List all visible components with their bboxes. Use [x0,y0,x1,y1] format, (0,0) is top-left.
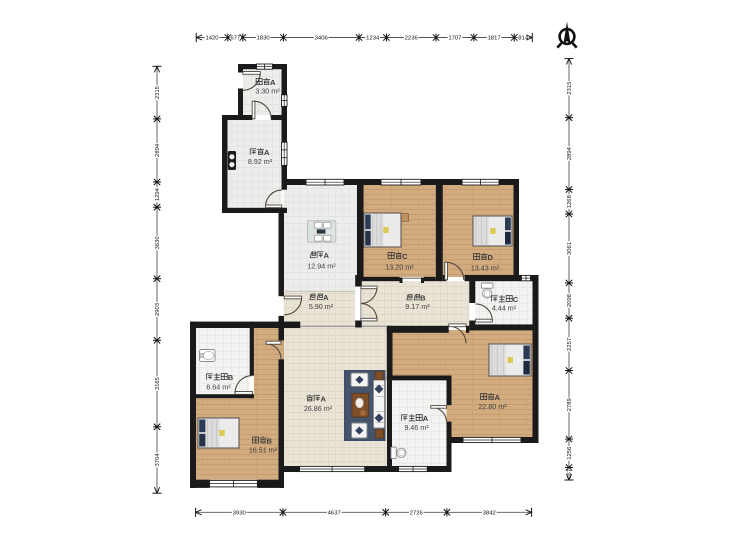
svg-text:4.44 m²: 4.44 m² [492,304,517,313]
svg-text:6.64 m²: 6.64 m² [206,383,231,392]
svg-text:3930: 3930 [233,510,247,516]
svg-text:2789: 2789 [567,398,573,411]
svg-text:C: C [402,252,408,261]
svg-text:B: B [228,373,234,382]
svg-text:A: A [495,393,501,402]
svg-text:2903: 2903 [155,302,161,316]
svg-text:3.30 m²: 3.30 m² [255,87,280,96]
svg-text:3704: 3704 [155,453,161,467]
svg-text:4637: 4637 [328,510,341,516]
svg-text:13.20 m²: 13.20 m² [385,263,414,272]
svg-text:26.86 m²: 26.86 m² [304,404,333,413]
svg-text:22.80 m²: 22.80 m² [478,402,507,411]
svg-text:12.94 m²: 12.94 m² [307,262,336,271]
svg-text:2726: 2726 [410,510,424,516]
svg-text:5.90 m²: 5.90 m² [309,302,334,311]
svg-text:3630: 3630 [155,236,161,250]
svg-text:9.46 m²: 9.46 m² [404,423,429,432]
svg-text:A: A [270,78,276,87]
svg-text:13.43 m²: 13.43 m² [471,264,500,273]
svg-text:1817: 1817 [488,36,501,42]
svg-text:2236: 2236 [405,36,419,42]
svg-text:2894: 2894 [567,146,573,160]
svg-text:1707: 1707 [448,36,461,42]
svg-text:A: A [324,251,330,260]
svg-text:3406: 3406 [315,36,329,42]
svg-text:1234: 1234 [366,36,380,42]
svg-text:1830: 1830 [257,36,271,42]
svg-text:1256: 1256 [567,446,573,460]
svg-text:B: B [267,436,273,445]
svg-text:8.92 m²: 8.92 m² [248,157,273,166]
svg-text:814: 814 [518,36,529,42]
svg-text:9.17 m²: 9.17 m² [405,302,430,311]
svg-text:3165: 3165 [155,376,161,390]
svg-text:2257: 2257 [567,338,573,351]
svg-text:2894: 2894 [155,143,161,157]
svg-text:677: 677 [230,36,240,42]
svg-text:C: C [513,295,519,304]
svg-text:1420: 1420 [205,36,219,42]
svg-text:A: A [323,293,329,302]
svg-text:3842: 3842 [483,510,496,516]
svg-text:3061: 3061 [567,242,573,255]
svg-text:2315: 2315 [155,85,161,99]
svg-text:2315: 2315 [567,81,573,95]
svg-text:B: B [420,293,426,302]
svg-text:2098: 2098 [567,293,573,307]
svg-text:A: A [321,394,327,403]
svg-text:1294: 1294 [155,187,161,201]
svg-text:A: A [264,148,270,157]
svg-text:A: A [423,414,429,423]
svg-text:16.51 m²: 16.51 m² [249,446,278,455]
svg-text:1268: 1268 [567,194,573,208]
svg-text:D: D [488,253,494,262]
